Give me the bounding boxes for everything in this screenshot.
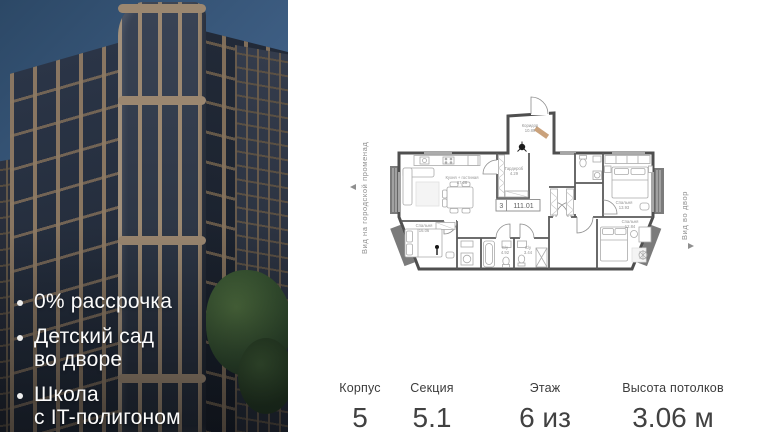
room-label: 37.28 (457, 180, 468, 185)
floorplan-svg: Коридор 10.89 Кухня + гостиная 37.28 Гар… (340, 88, 712, 292)
spec-label: Этаж (500, 381, 590, 395)
room-label: 4.29 (510, 171, 519, 176)
feature-text: Школа (34, 384, 181, 406)
tag-area: 111.01 (513, 203, 533, 210)
spec-sektsiya: Секция 5.1 (397, 381, 467, 432)
spec-label: Корпус (327, 381, 393, 395)
feature-text: 0% рассрочка (34, 291, 172, 313)
bullet-icon (17, 393, 23, 399)
feature-item: 0% рассрочка (17, 291, 181, 313)
tag-rooms: 3 (499, 203, 503, 210)
spec-value: 5.1 (397, 402, 467, 432)
feature-text: Детский сад (34, 326, 154, 348)
room-label: 13.93 (619, 205, 630, 210)
feature-item: Детский сад во дворе (17, 326, 181, 371)
spec-value: 5 (327, 402, 393, 432)
room-label: 16.06 (419, 228, 430, 233)
spec-ceiling-height: Высота потолков 3.06 м (608, 381, 738, 432)
bullet-icon (17, 300, 23, 306)
room-label: 4.92 (501, 250, 510, 255)
spec-value: 6 из 15 (500, 402, 590, 432)
spec-label: Секция (397, 381, 467, 395)
feature-list: 0% рассрочка Детский сад во дворе Школа … (17, 291, 181, 432)
apartment-tag: 3 111.01 (496, 200, 540, 212)
spec-value: 3.06 м (608, 402, 738, 432)
room-label: 12.84 (625, 224, 636, 229)
feature-text: с IT-полигоном (34, 407, 181, 429)
feature-text: во дворе (34, 349, 154, 371)
spec-korpus: Корпус 5 (327, 381, 393, 432)
apartment-card: 0% рассрочка Детский сад во дворе Школа … (0, 0, 768, 432)
bullet-icon (17, 335, 23, 341)
spec-etazh: Этаж 6 из 15 (500, 381, 590, 432)
room-label: 3.44 (524, 250, 533, 255)
room-label: 10.89 (525, 128, 536, 133)
feature-item: Школа с IT-полигоном (17, 384, 181, 429)
spec-label: Высота потолков (608, 381, 738, 395)
